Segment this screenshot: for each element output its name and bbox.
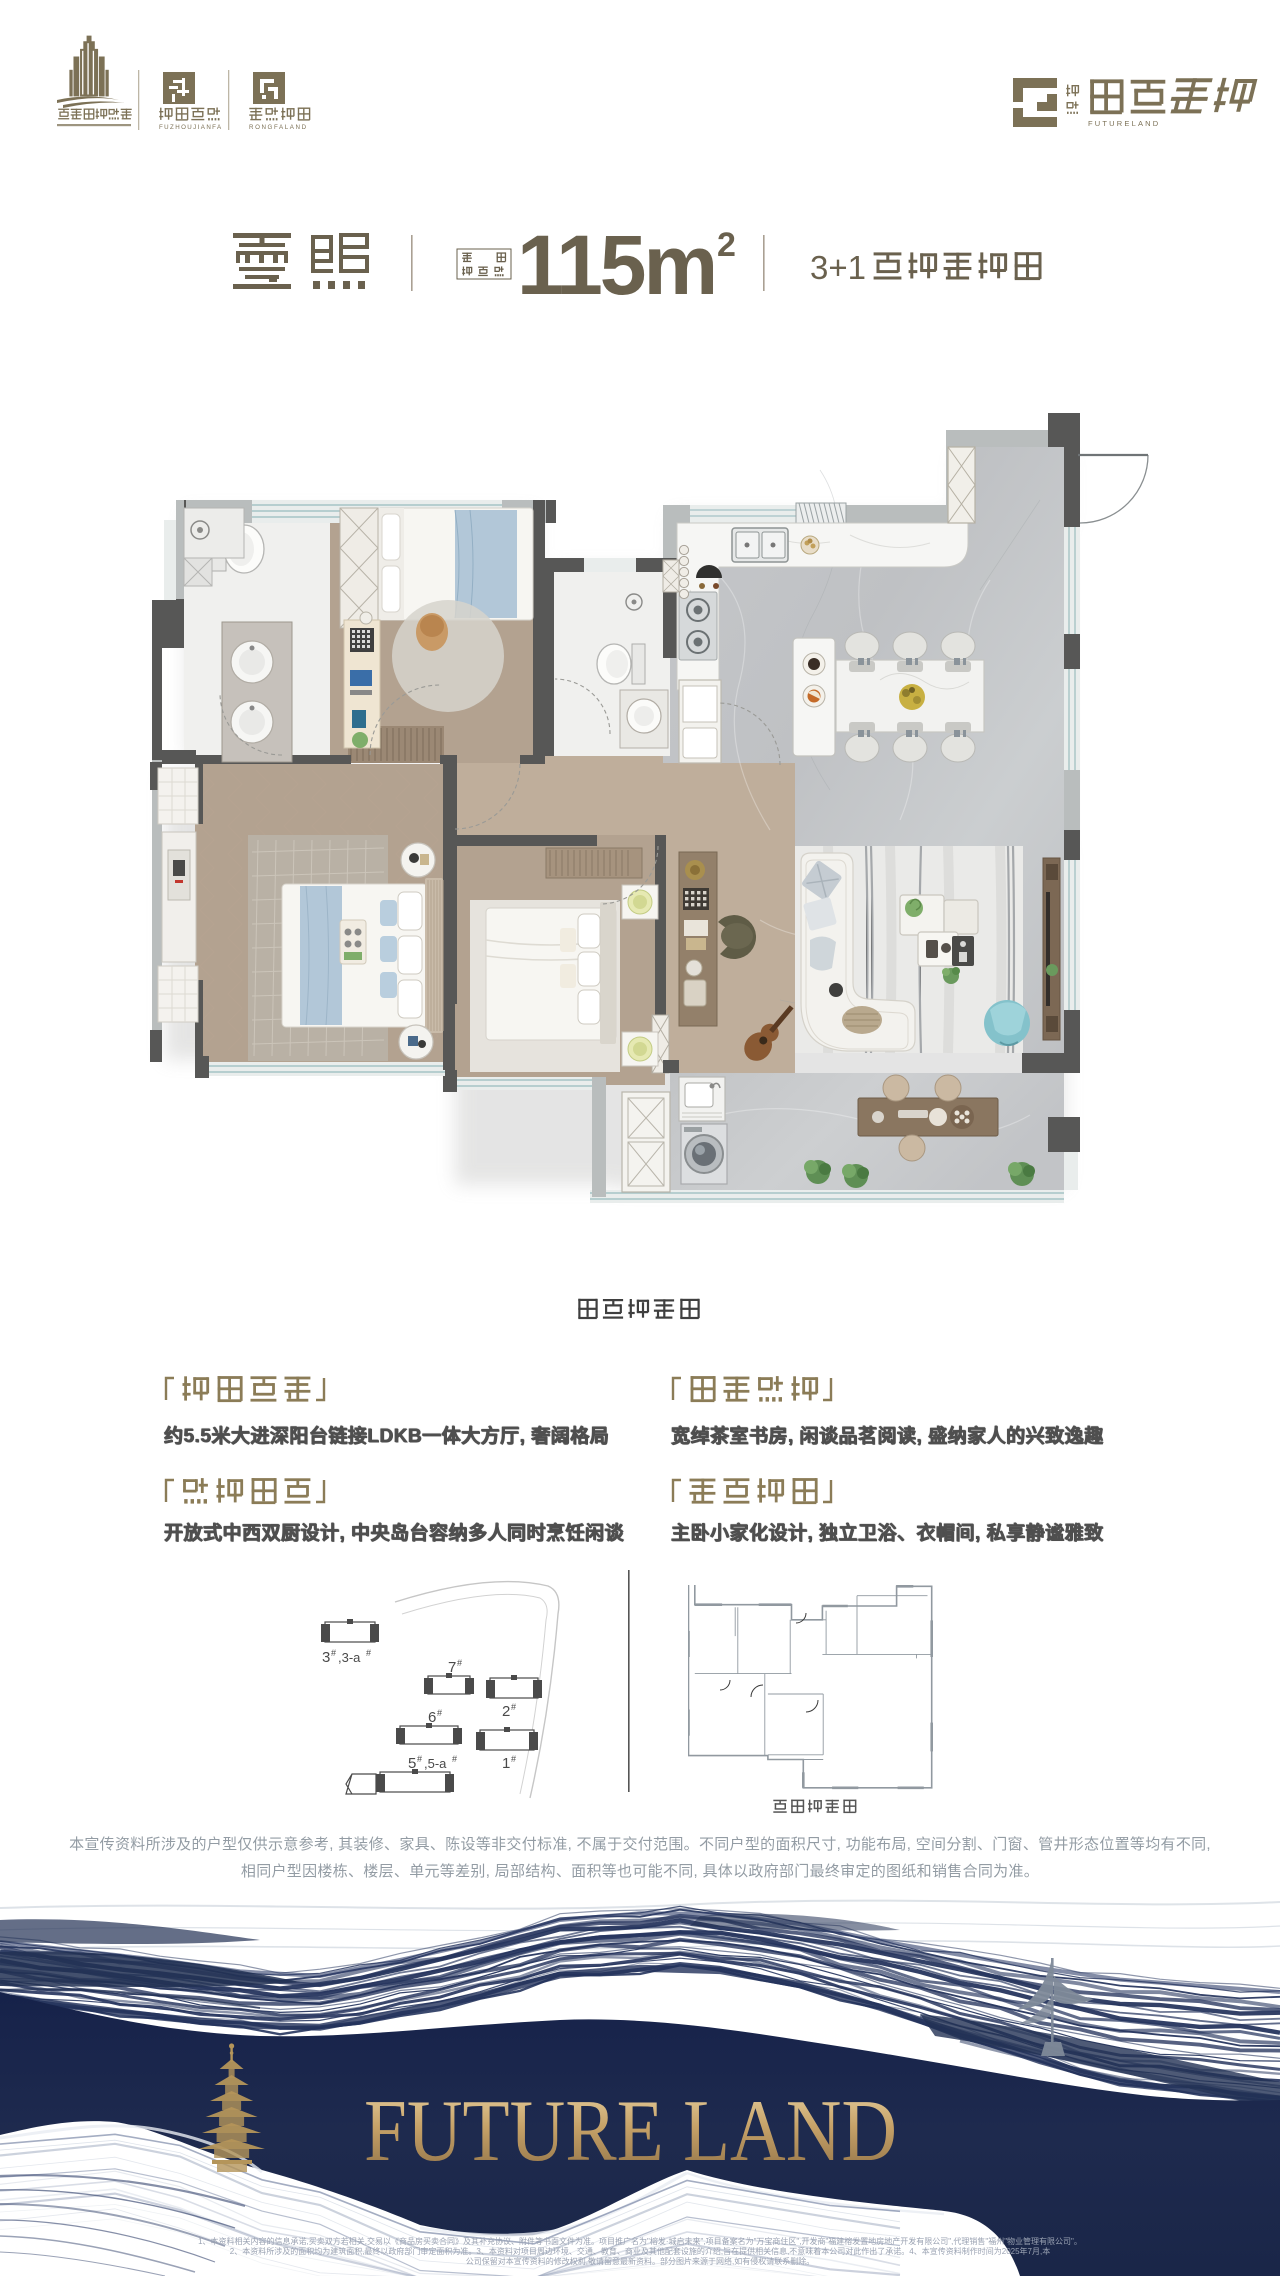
svg-text:2、本资料所涉及的面积均为建筑面积,最终以政府部门审定面积为: 2、本资料所涉及的面积均为建筑面积,最终以政府部门审定面积为准。3、本资料对项目…	[230, 2246, 1050, 2256]
svg-text:FUZHOUJIANFA: FUZHOUJIANFA	[159, 124, 223, 131]
svg-text:#: #	[417, 1754, 422, 1764]
svg-text:#: #	[331, 1648, 336, 1658]
svg-text:#: #	[511, 1702, 516, 1712]
svg-text:#: #	[437, 1708, 442, 1718]
svg-text:2: 2	[502, 1703, 510, 1720]
svg-text:1: 1	[502, 1755, 510, 1772]
svg-text:,3-a: ,3-a	[338, 1650, 361, 1665]
svg-text:3+1: 3+1	[810, 249, 866, 286]
svg-text:3: 3	[322, 1649, 330, 1666]
svg-text:#: #	[452, 1754, 457, 1764]
svg-text:1、本资料相关内容的信息承诺,买卖双方若相关,交易以《商品房: 1、本资料相关内容的信息承诺,买卖双方若相关,交易以《商品房买卖合同》及其补充协…	[198, 2236, 1082, 2246]
svg-text:2: 2	[717, 226, 736, 264]
svg-text:RONGFALAND: RONGFALAND	[249, 124, 308, 131]
svg-text:115m: 115m	[517, 225, 715, 305]
svg-text:公司保留对本宣传资料的修改权利,敬请留意最新资料。部分图片来: 公司保留对本宣传资料的修改权利,敬请留意最新资料。部分图片来源于网络,如有侵权请…	[466, 2256, 814, 2266]
svg-text:FUTURE LAND: FUTURE LAND	[364, 2083, 897, 2180]
svg-text:FUTURELAND: FUTURELAND	[1088, 119, 1160, 128]
svg-text:,5-a: ,5-a	[424, 1756, 447, 1771]
svg-text:#: #	[457, 1658, 462, 1668]
svg-text:#: #	[366, 1648, 371, 1658]
svg-text:#: #	[511, 1754, 516, 1764]
